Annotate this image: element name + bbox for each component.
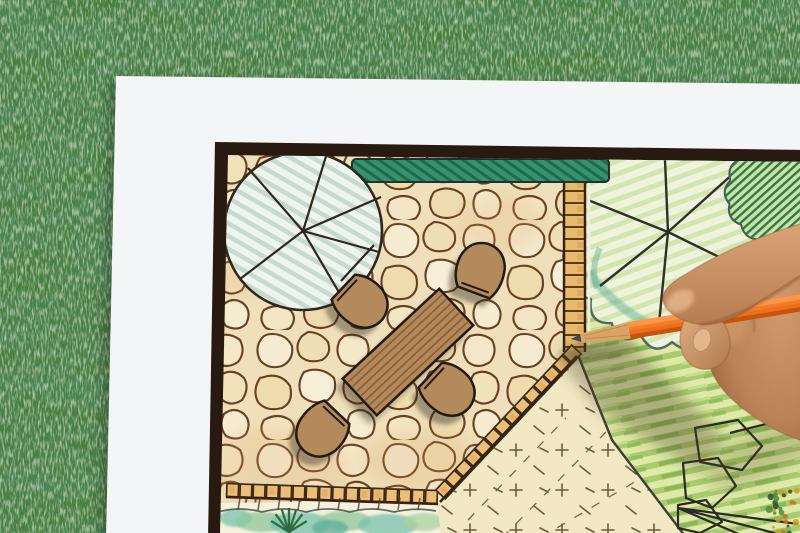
photo-canvas bbox=[0, 0, 800, 533]
hedge-row bbox=[352, 159, 609, 182]
garden-plan-photo bbox=[0, 0, 800, 533]
paver-walkway bbox=[563, 156, 589, 352]
